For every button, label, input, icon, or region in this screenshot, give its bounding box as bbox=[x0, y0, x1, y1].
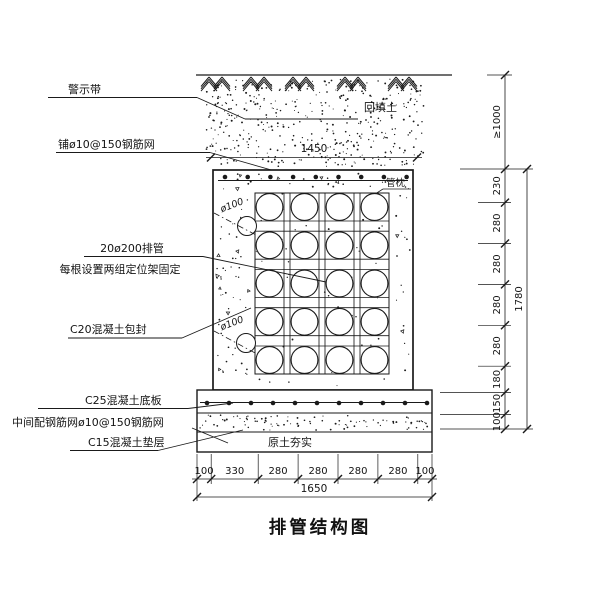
stipple-dot bbox=[226, 119, 227, 120]
rebar-dot bbox=[314, 175, 319, 180]
stipple-dot bbox=[234, 147, 235, 148]
stipple-dot bbox=[381, 132, 383, 134]
drawing-title: 排管结构图 bbox=[269, 517, 372, 538]
stipple-dot bbox=[404, 150, 406, 152]
stipple-dot bbox=[389, 79, 390, 80]
stipple-dot bbox=[237, 415, 238, 416]
stipple-dot bbox=[250, 82, 251, 83]
stipple-dot bbox=[240, 299, 241, 300]
stipple-dot bbox=[415, 84, 416, 85]
stipple-dot bbox=[378, 156, 379, 157]
stipple-dot bbox=[220, 123, 221, 124]
rebar-dot bbox=[425, 401, 430, 406]
stipple-dot bbox=[393, 146, 394, 147]
hatch-stroke bbox=[388, 82, 396, 92]
stipple-dot bbox=[346, 425, 347, 426]
stipple-dot bbox=[357, 173, 359, 175]
stipple-dot bbox=[217, 97, 219, 99]
stipple-dot bbox=[259, 379, 261, 381]
stipple-dot bbox=[258, 146, 259, 147]
stipple-dot bbox=[275, 100, 276, 101]
stipple-dot bbox=[216, 268, 217, 269]
stipple-dot bbox=[235, 276, 236, 277]
stipple-dot bbox=[331, 80, 333, 82]
pipe-circle bbox=[326, 308, 353, 335]
stipple-dot bbox=[384, 136, 385, 137]
stipple-dot bbox=[347, 98, 349, 100]
stipple-dot bbox=[416, 427, 418, 429]
stipple-dot bbox=[216, 112, 217, 113]
stipple-dot bbox=[220, 149, 222, 151]
stipple-dot bbox=[263, 100, 264, 101]
stipple-dot bbox=[355, 112, 357, 114]
stipple-dot bbox=[414, 154, 415, 155]
stipple-dot bbox=[370, 344, 371, 345]
stipple-dot bbox=[311, 133, 313, 135]
stipple-dot bbox=[336, 385, 337, 386]
stipple-dot bbox=[310, 103, 311, 104]
stipple-dot bbox=[218, 319, 220, 321]
stipple-dot bbox=[210, 145, 212, 147]
stipple-dot bbox=[380, 425, 381, 426]
stipple-dot bbox=[269, 381, 270, 382]
stipple-dot bbox=[244, 421, 245, 422]
stipple-dot bbox=[417, 124, 419, 126]
stipple-dot bbox=[421, 133, 422, 134]
stipple-dot bbox=[257, 124, 259, 126]
stipple-dot bbox=[421, 121, 422, 122]
stipple-dot bbox=[277, 149, 279, 151]
stipple-dot bbox=[277, 165, 279, 167]
stipple-dot bbox=[382, 419, 383, 420]
stipple-dot bbox=[209, 112, 211, 114]
stipple-dot bbox=[356, 247, 357, 248]
stipple-dot bbox=[207, 82, 208, 83]
stipple-dot bbox=[258, 94, 259, 95]
dim-base-total-value: 1650 bbox=[301, 483, 328, 495]
stipple-dot bbox=[222, 294, 223, 295]
hatch-stroke bbox=[222, 82, 230, 92]
dim-height-segment-value: 280 bbox=[492, 336, 503, 355]
stipple-dot bbox=[307, 117, 308, 118]
stipple-dot bbox=[246, 110, 247, 111]
stipple-dot bbox=[355, 90, 356, 91]
rebar-dot bbox=[315, 401, 320, 406]
stipple-dot bbox=[291, 83, 293, 85]
stipple-dot bbox=[293, 123, 295, 125]
stipple-dot bbox=[340, 142, 341, 143]
stipple-dot bbox=[295, 229, 296, 230]
stipple-dot bbox=[248, 133, 249, 134]
stipple-dot bbox=[415, 99, 416, 100]
stipple-dot bbox=[282, 151, 283, 152]
dim-height-chain: 230280280280280180150100 ≥1000 1780 bbox=[440, 71, 533, 433]
stipple-dot bbox=[416, 90, 418, 92]
dim-trench-width-value: 1450 bbox=[301, 143, 328, 155]
stipple-dot bbox=[424, 422, 425, 423]
stipple-dot bbox=[392, 128, 393, 129]
stipple-dot bbox=[241, 121, 243, 123]
stipple-dot bbox=[245, 92, 247, 94]
stipple-dot bbox=[206, 147, 208, 149]
stipple-dot bbox=[340, 79, 341, 80]
stipple-dot bbox=[256, 251, 257, 252]
stipple-dot bbox=[398, 93, 399, 94]
pipe-circle bbox=[361, 270, 388, 297]
rebar-dot bbox=[268, 175, 273, 180]
stipple-dot bbox=[216, 425, 218, 427]
stipple-dot bbox=[212, 96, 213, 97]
stipple-dot bbox=[240, 256, 241, 257]
stipple-dot bbox=[327, 147, 328, 148]
stipple-dot bbox=[230, 108, 232, 110]
stipple-dot bbox=[343, 428, 345, 430]
stipple-dot bbox=[226, 361, 228, 363]
stipple-dot bbox=[409, 249, 411, 251]
stipple-dot bbox=[226, 103, 227, 104]
stipple-dot bbox=[261, 87, 263, 89]
stipple-dot bbox=[326, 128, 328, 130]
stipple-dot bbox=[213, 90, 215, 92]
hatch-stroke bbox=[256, 77, 264, 87]
stipple-dot bbox=[378, 118, 380, 120]
stipple-dot bbox=[246, 416, 247, 417]
stipple-dot bbox=[206, 91, 208, 93]
stipple-dot bbox=[354, 84, 356, 86]
rebar-dot bbox=[381, 401, 386, 406]
stipple-dot bbox=[229, 233, 231, 235]
stipple-dot bbox=[403, 152, 404, 153]
warning-tape-label: 警示带 bbox=[68, 82, 101, 96]
stipple-dot bbox=[395, 421, 397, 423]
stipple-dot bbox=[326, 84, 327, 85]
stipple-dot bbox=[270, 148, 272, 150]
stipple-dot bbox=[244, 108, 246, 110]
stipple-dot bbox=[419, 90, 421, 92]
pipe-circle bbox=[326, 270, 353, 297]
stipple-dot bbox=[254, 418, 255, 419]
stipple-dot bbox=[258, 174, 260, 176]
stipple-dot bbox=[222, 370, 223, 371]
rebar-dot bbox=[359, 401, 364, 406]
stipple-dot bbox=[328, 82, 330, 84]
stipple-dot bbox=[335, 162, 336, 163]
stipple-dot bbox=[265, 417, 267, 419]
rebar-dot bbox=[337, 401, 342, 406]
stipple-dot bbox=[296, 99, 297, 100]
stipple-dot bbox=[222, 419, 223, 420]
stipple-dot bbox=[330, 429, 332, 431]
stipple-dot bbox=[326, 131, 327, 132]
stipple-dot bbox=[406, 160, 407, 161]
stipple-dot bbox=[288, 381, 289, 382]
pipe-circle bbox=[291, 308, 318, 335]
stipple-dot bbox=[302, 137, 303, 138]
stipple-dot bbox=[208, 116, 210, 118]
stipple-dot bbox=[273, 108, 274, 109]
stipple-dot bbox=[372, 130, 373, 131]
stipple-dot bbox=[285, 248, 286, 249]
stipple-dot bbox=[232, 223, 233, 224]
stipple-dot bbox=[345, 131, 347, 133]
stipple-dot bbox=[335, 143, 337, 145]
dim-base-segment-value: 280 bbox=[388, 466, 407, 477]
dim-height-segment-value: 280 bbox=[492, 254, 503, 273]
stipple-dot bbox=[357, 144, 359, 146]
stipple-dot bbox=[285, 103, 287, 105]
stipple-dot bbox=[219, 126, 221, 128]
stipple-dot bbox=[211, 127, 212, 128]
stipple-dot bbox=[316, 94, 317, 95]
stipple-dot bbox=[287, 416, 288, 417]
pipe-bank-label-2: 每根设置两组定位架固定 bbox=[60, 262, 181, 276]
stipple-dot bbox=[404, 343, 405, 344]
pipe-circle bbox=[326, 347, 353, 374]
conduit-circle bbox=[238, 217, 257, 236]
stipple-dot bbox=[404, 106, 405, 107]
stipple-dot bbox=[359, 251, 360, 252]
pipe-circle bbox=[291, 270, 318, 297]
stipple-dot bbox=[237, 173, 239, 175]
stipple-dot bbox=[247, 183, 249, 185]
stipple-dot bbox=[291, 87, 293, 89]
stipple-dot bbox=[363, 158, 365, 160]
stipple-dot bbox=[333, 149, 334, 150]
stipple-dot bbox=[408, 134, 409, 135]
stipple-dot bbox=[214, 129, 215, 130]
stipple-dot bbox=[339, 96, 341, 98]
stipple-dot bbox=[373, 121, 375, 123]
stipple-dot bbox=[355, 316, 356, 317]
stipple-dot bbox=[277, 122, 279, 124]
stipple-dot bbox=[411, 130, 412, 131]
stipple-dot bbox=[248, 144, 249, 145]
stipple-dot bbox=[345, 424, 346, 425]
stipple-dot bbox=[391, 152, 392, 153]
stipple-dot bbox=[322, 110, 324, 112]
stipple-dot bbox=[279, 135, 281, 137]
stipple-dot bbox=[267, 153, 268, 154]
hatch-stroke bbox=[285, 77, 293, 87]
stipple-dot bbox=[330, 146, 331, 147]
stipple-dot bbox=[268, 127, 269, 128]
stipple-dot bbox=[366, 82, 367, 83]
backfill-soil-label: 回填土 bbox=[364, 100, 397, 114]
stipple-dot bbox=[409, 115, 411, 117]
rebar-dot bbox=[359, 175, 364, 180]
stipple-dot bbox=[276, 415, 278, 417]
pipe-circle bbox=[361, 308, 388, 335]
dim-height-segment-value: 230 bbox=[492, 176, 503, 195]
stipple-dot bbox=[227, 94, 229, 96]
stipple-dot bbox=[294, 162, 296, 164]
stipple-dot bbox=[240, 154, 241, 155]
stipple-dot bbox=[342, 164, 343, 165]
stipple-dot bbox=[370, 126, 372, 128]
stipple-dot bbox=[247, 415, 248, 416]
stipple-dot bbox=[265, 130, 266, 131]
stipple-dot bbox=[396, 255, 398, 257]
stipple-dot bbox=[206, 148, 208, 150]
stipple-dot bbox=[413, 146, 415, 148]
stipple-dot bbox=[384, 82, 386, 84]
pipe-circle bbox=[256, 232, 283, 259]
stipple-dot bbox=[359, 421, 360, 422]
stipple-dot bbox=[199, 427, 200, 428]
stipple-dot bbox=[224, 148, 226, 150]
stipple-dot bbox=[352, 90, 354, 92]
stipple-dot bbox=[249, 95, 251, 97]
stipple-dot bbox=[329, 158, 330, 159]
stipple-dot bbox=[373, 141, 374, 142]
stipple-dot bbox=[290, 85, 292, 87]
hatch-stroke bbox=[358, 77, 366, 87]
stipple-dot bbox=[411, 88, 413, 90]
stipple-dot bbox=[360, 137, 361, 138]
stipple-dot bbox=[228, 346, 230, 348]
stipple-dot bbox=[377, 123, 379, 125]
stipple-dot bbox=[351, 165, 353, 167]
stipple-dot bbox=[366, 426, 367, 427]
stipple-dot bbox=[362, 87, 364, 89]
stipple-dot bbox=[263, 98, 265, 100]
stipple-dot bbox=[391, 117, 393, 119]
conduit-circle bbox=[237, 334, 256, 353]
hatch-stroke bbox=[243, 82, 251, 92]
stipple-dot bbox=[251, 136, 252, 137]
stipple-dot bbox=[365, 119, 367, 121]
stipple-dot bbox=[334, 139, 336, 141]
stipple-dot bbox=[359, 85, 360, 86]
dim-base-segment-value: 100 bbox=[195, 466, 214, 477]
stipple-dot bbox=[310, 423, 311, 424]
stipple-dot bbox=[290, 423, 291, 424]
stipple-dot bbox=[410, 99, 411, 100]
stipple-dot bbox=[278, 162, 280, 164]
stipple-dot bbox=[399, 147, 401, 149]
stipple-dot bbox=[233, 426, 235, 428]
rebar-dot bbox=[271, 401, 276, 406]
stipple-dot bbox=[407, 429, 408, 430]
stipple-dot bbox=[220, 276, 221, 277]
stipple-dot bbox=[305, 225, 306, 226]
stipple-dot bbox=[401, 231, 402, 232]
stipple-dot bbox=[356, 142, 358, 144]
stipple-dot bbox=[221, 81, 222, 82]
stipple-dot bbox=[245, 424, 246, 425]
stipple-dot bbox=[229, 115, 231, 117]
stipple-dot bbox=[402, 79, 404, 81]
stipple-dot bbox=[377, 80, 378, 81]
stipple-dot bbox=[292, 101, 293, 102]
stipple-dot bbox=[232, 258, 234, 260]
stipple-dot bbox=[208, 415, 209, 416]
stipple-dot bbox=[319, 92, 320, 93]
stipple-dot bbox=[210, 415, 212, 417]
dim-base-segment-value: 330 bbox=[225, 466, 244, 477]
stipple-dot bbox=[276, 423, 277, 424]
stipple-dot bbox=[287, 420, 289, 422]
stipple-dot bbox=[401, 161, 403, 163]
top-mesh-label: 铺ø10@150钢筋网 bbox=[58, 137, 155, 151]
dim-height-segment-value: 280 bbox=[492, 295, 503, 314]
stipple-dot bbox=[326, 123, 328, 125]
hatch-stroke bbox=[337, 82, 345, 92]
stipple-dot bbox=[421, 420, 422, 421]
hatch-stroke bbox=[222, 79, 230, 89]
stipple-dot bbox=[342, 183, 344, 185]
stipple-dot bbox=[294, 101, 296, 103]
stipple-dot bbox=[416, 101, 417, 102]
stipple-dot bbox=[217, 355, 218, 356]
pipe-circle bbox=[256, 270, 283, 297]
stipple-dot bbox=[359, 135, 361, 137]
stipple-dot bbox=[375, 263, 376, 264]
stipple-dot bbox=[325, 161, 327, 163]
stipple-dot bbox=[226, 148, 227, 149]
stipple-dot bbox=[322, 420, 324, 422]
stipple-dot bbox=[380, 164, 382, 166]
stipple-dot bbox=[402, 164, 403, 165]
stipple-dot bbox=[360, 121, 362, 123]
pipe-circle bbox=[326, 194, 353, 221]
stipple-dot bbox=[217, 103, 219, 105]
stipple-dot bbox=[256, 421, 258, 423]
pipe-circle bbox=[291, 194, 318, 221]
stipple-dot bbox=[403, 103, 404, 104]
stipple-dot bbox=[356, 422, 357, 423]
stipple-dot bbox=[303, 178, 305, 180]
stipple-dot bbox=[228, 108, 230, 110]
stipple-dot bbox=[409, 132, 411, 134]
stipple-dot bbox=[370, 116, 371, 117]
stipple-dot bbox=[236, 80, 237, 81]
stipple-dot bbox=[283, 162, 284, 163]
stipple-dot bbox=[235, 89, 236, 90]
stipple-dot bbox=[358, 123, 359, 124]
stipple-dot bbox=[363, 420, 365, 422]
stipple-dot bbox=[320, 121, 322, 123]
stipple-dot bbox=[292, 139, 294, 141]
stipple-dot bbox=[405, 421, 406, 422]
stipple-dot bbox=[394, 143, 396, 145]
stipple-dot bbox=[233, 140, 234, 141]
stipple-dot bbox=[237, 151, 239, 153]
stipple-dot bbox=[255, 420, 256, 421]
stipple-dot bbox=[360, 123, 361, 124]
dim-height-segment-value: 100 bbox=[492, 412, 503, 431]
stipple-dot bbox=[311, 140, 312, 141]
stipple-dot bbox=[373, 419, 374, 420]
stipple-dot bbox=[227, 125, 228, 126]
stipple-dot bbox=[231, 115, 233, 117]
stipple-dot bbox=[383, 378, 385, 380]
stipple-dot bbox=[227, 159, 228, 160]
stipple-dot bbox=[262, 129, 263, 130]
pipe-circle bbox=[361, 232, 388, 259]
stipple-dot bbox=[254, 103, 256, 105]
stipple-dot bbox=[326, 91, 328, 93]
ground-surface bbox=[196, 75, 452, 91]
stipple-dot bbox=[370, 146, 372, 148]
stipple-dot bbox=[347, 140, 349, 142]
stipple-dot bbox=[343, 94, 345, 96]
stipple-dot bbox=[290, 81, 291, 82]
stipple-dot bbox=[408, 427, 410, 429]
stipple-dot bbox=[350, 80, 352, 82]
pipe-circle bbox=[256, 347, 283, 374]
stipple-dot bbox=[404, 369, 406, 371]
